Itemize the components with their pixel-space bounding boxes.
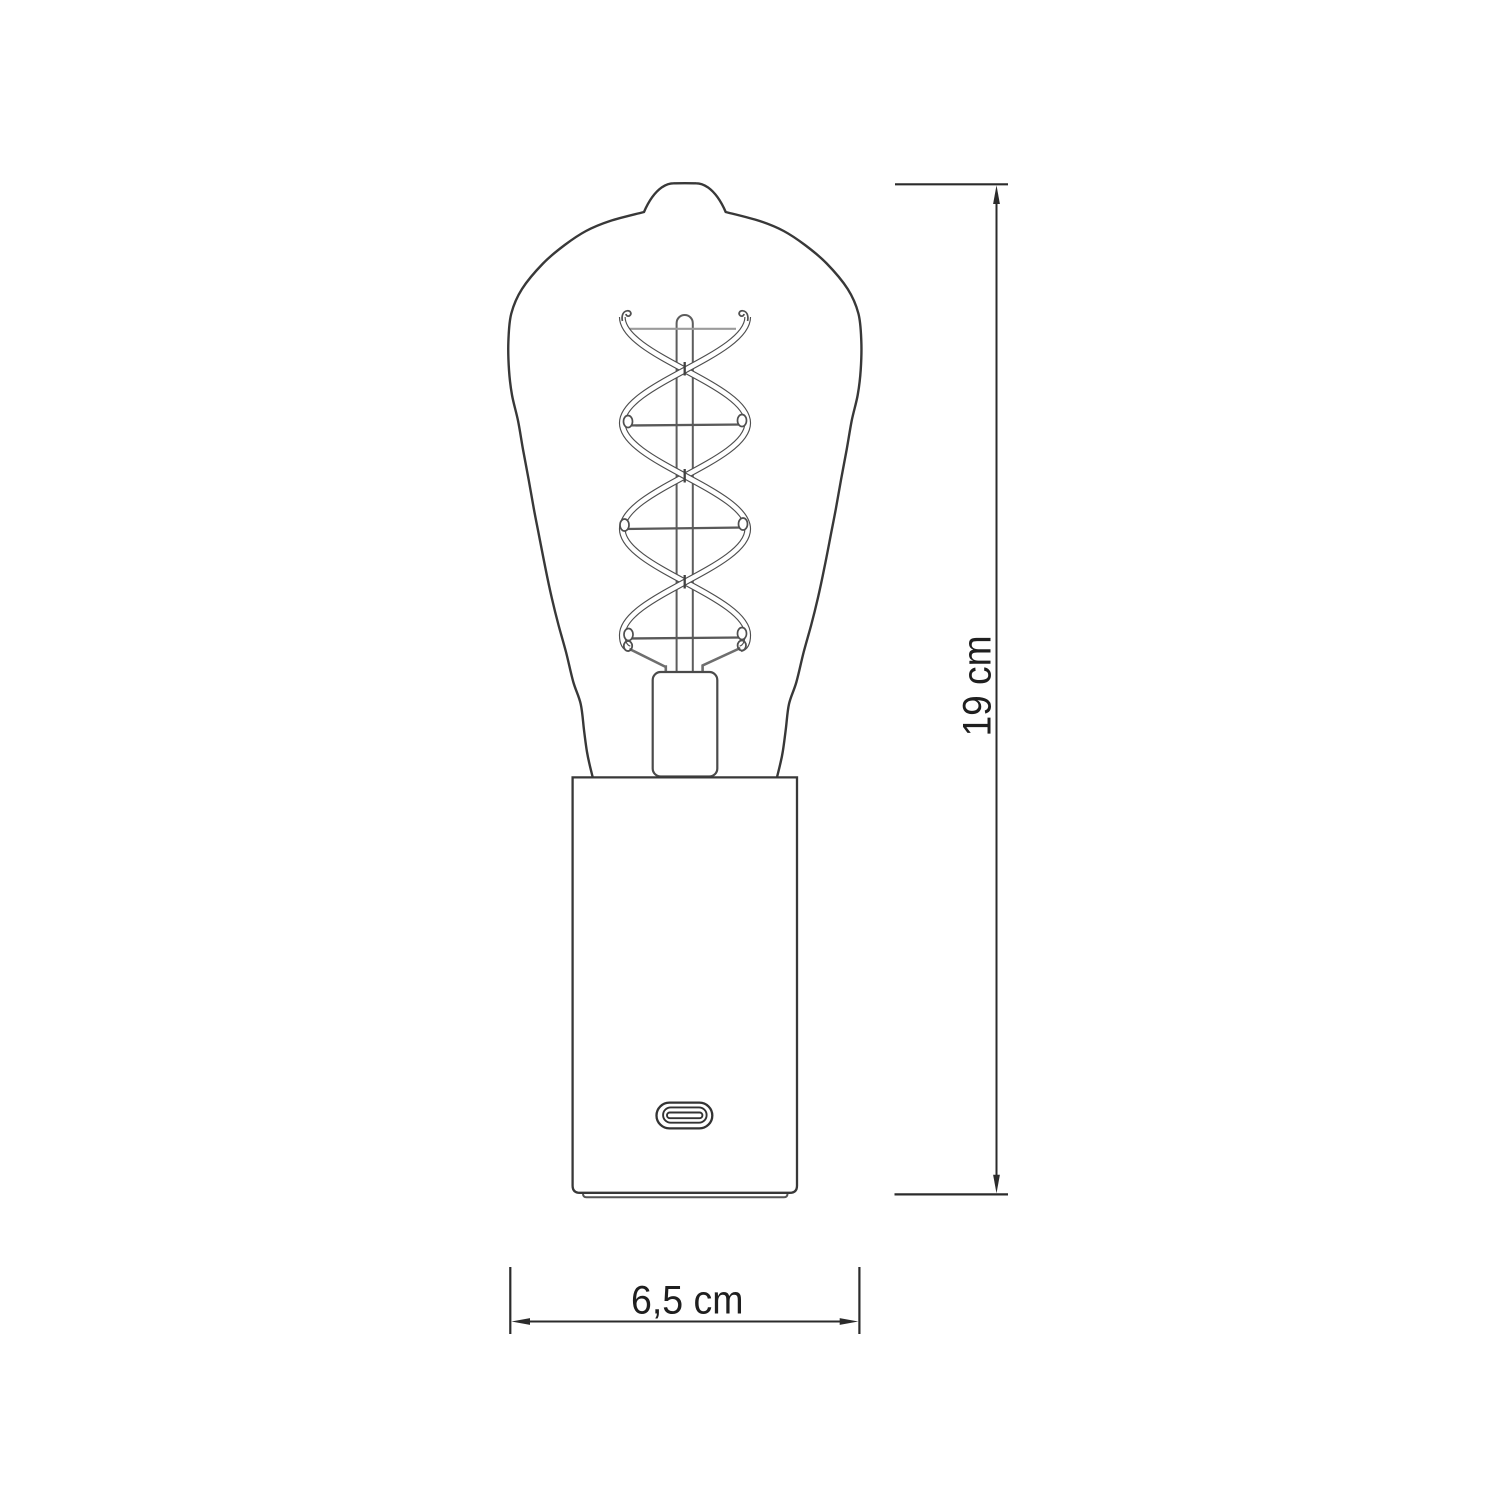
svg-text:19 cm: 19 cm: [956, 636, 1000, 737]
svg-text:6,5 cm: 6,5 cm: [631, 1279, 744, 1323]
